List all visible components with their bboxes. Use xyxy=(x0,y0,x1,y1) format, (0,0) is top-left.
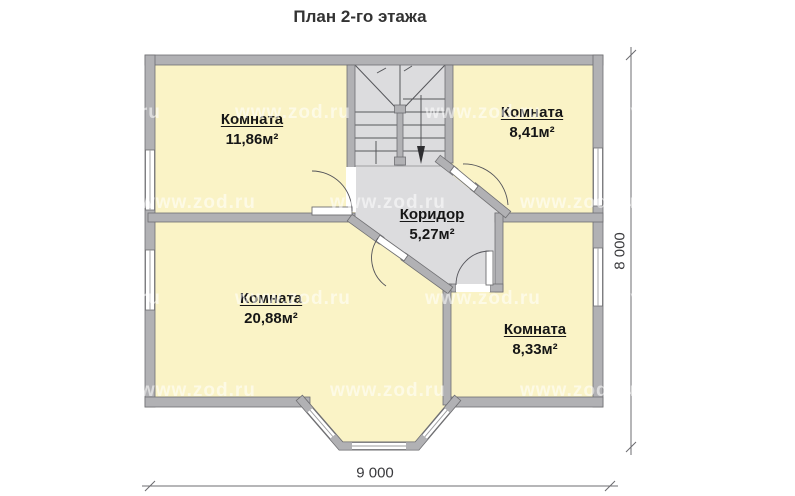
outer-wall-bottom-left xyxy=(145,397,310,407)
wall-between-right-rooms xyxy=(495,213,603,222)
door-leaf-room1 xyxy=(312,207,352,215)
outer-wall-right xyxy=(593,55,603,407)
room-name: Комната xyxy=(504,320,566,340)
room-area: 5,27м² xyxy=(400,225,465,245)
outer-wall-bottom-right xyxy=(448,397,603,407)
room-area: 8,41м² xyxy=(501,123,563,143)
room-name: Комната xyxy=(501,103,563,123)
dimension-height-label: 8 000 xyxy=(612,232,629,270)
door-opening-room5 xyxy=(456,284,490,292)
corridor-label: Коридор 5,27м² xyxy=(400,205,465,245)
floor-plan-page: План 2-го этажа Комната 11,86м² Комната … xyxy=(0,0,795,496)
room-label-20-88: Комната 20,88м² xyxy=(240,289,302,329)
room-area: 8,33м² xyxy=(504,340,566,360)
wall-room833-left xyxy=(443,284,451,405)
room-name: Коридор xyxy=(400,205,465,225)
room-name: Комната xyxy=(240,289,302,309)
outer-wall-top xyxy=(145,55,603,65)
door-opening-room1 xyxy=(346,167,356,212)
floor-plan-drawing xyxy=(0,0,795,496)
corridor-wall-right xyxy=(495,213,503,292)
room-label-11-86: Комната 11,86м² xyxy=(221,110,283,150)
stairwell-wall-left xyxy=(347,65,355,168)
room-area: 20,88м² xyxy=(240,309,302,329)
dimension-width-label: 9 000 xyxy=(356,465,394,482)
room-label-8-41: Комната 8,41м² xyxy=(501,103,563,143)
outer-wall-left xyxy=(145,55,155,407)
stairwell-wall-right xyxy=(445,65,453,163)
page-title: План 2-го этажа xyxy=(293,7,426,27)
door-leaf-room5 xyxy=(486,251,493,285)
room-name: Комната xyxy=(221,110,283,130)
room-area: 11,86м² xyxy=(221,130,283,150)
room-label-8-33: Комната 8,33м² xyxy=(504,320,566,360)
